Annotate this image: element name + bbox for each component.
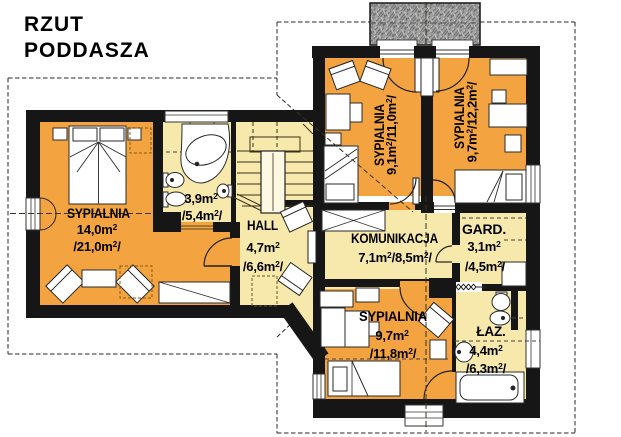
svg-text:SYPIALNIA: SYPIALNIA	[359, 309, 427, 324]
svg-text:SYPIALNIA: SYPIALNIA	[67, 206, 130, 221]
svg-text:14,0m2: 14,0m2	[77, 222, 118, 237]
svg-text:7,1m2/8,5m2/: 7,1m2/8,5m2/	[358, 250, 432, 265]
svg-text:GARD.: GARD.	[462, 222, 506, 237]
svg-text:3,1m2: 3,1m2	[467, 239, 501, 254]
svg-text:4,4m2: 4,4m2	[469, 343, 503, 358]
svg-text:HALL: HALL	[247, 218, 278, 233]
svg-text:PODDASZA: PODDASZA	[24, 39, 150, 62]
svg-text:RZUT: RZUT	[24, 13, 84, 36]
svg-text:4,7m2: 4,7m2	[246, 240, 280, 255]
svg-text:9,7m2/12,2m2/: 9,7m2/12,2m2/	[465, 81, 480, 162]
svg-text:9,1m2/11,0m2/: 9,1m2/11,0m2/	[384, 94, 399, 174]
svg-text:9,7m2: 9,7m2	[375, 328, 409, 343]
svg-text:3,9m2: 3,9m2	[184, 191, 218, 206]
svg-text:ŁAZ.: ŁAZ.	[476, 324, 505, 339]
svg-text:KOMUNIKACJA: KOMUNIKACJA	[351, 231, 438, 246]
